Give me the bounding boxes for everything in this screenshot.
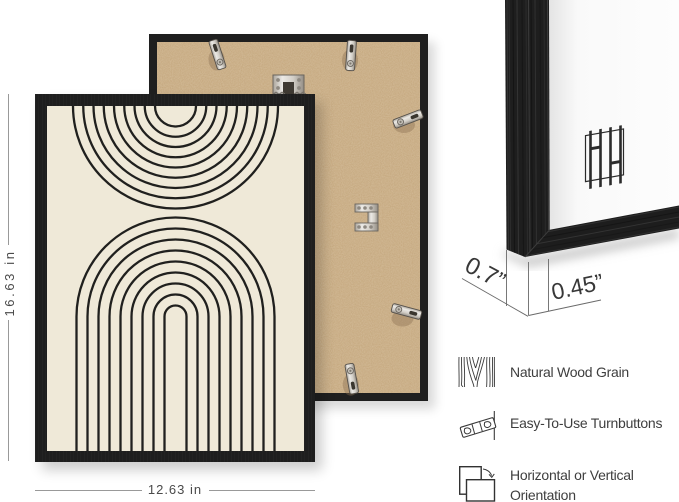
svg-text:0.45”: 0.45” [549, 269, 606, 305]
svg-text:0.7”: 0.7” [460, 252, 509, 295]
